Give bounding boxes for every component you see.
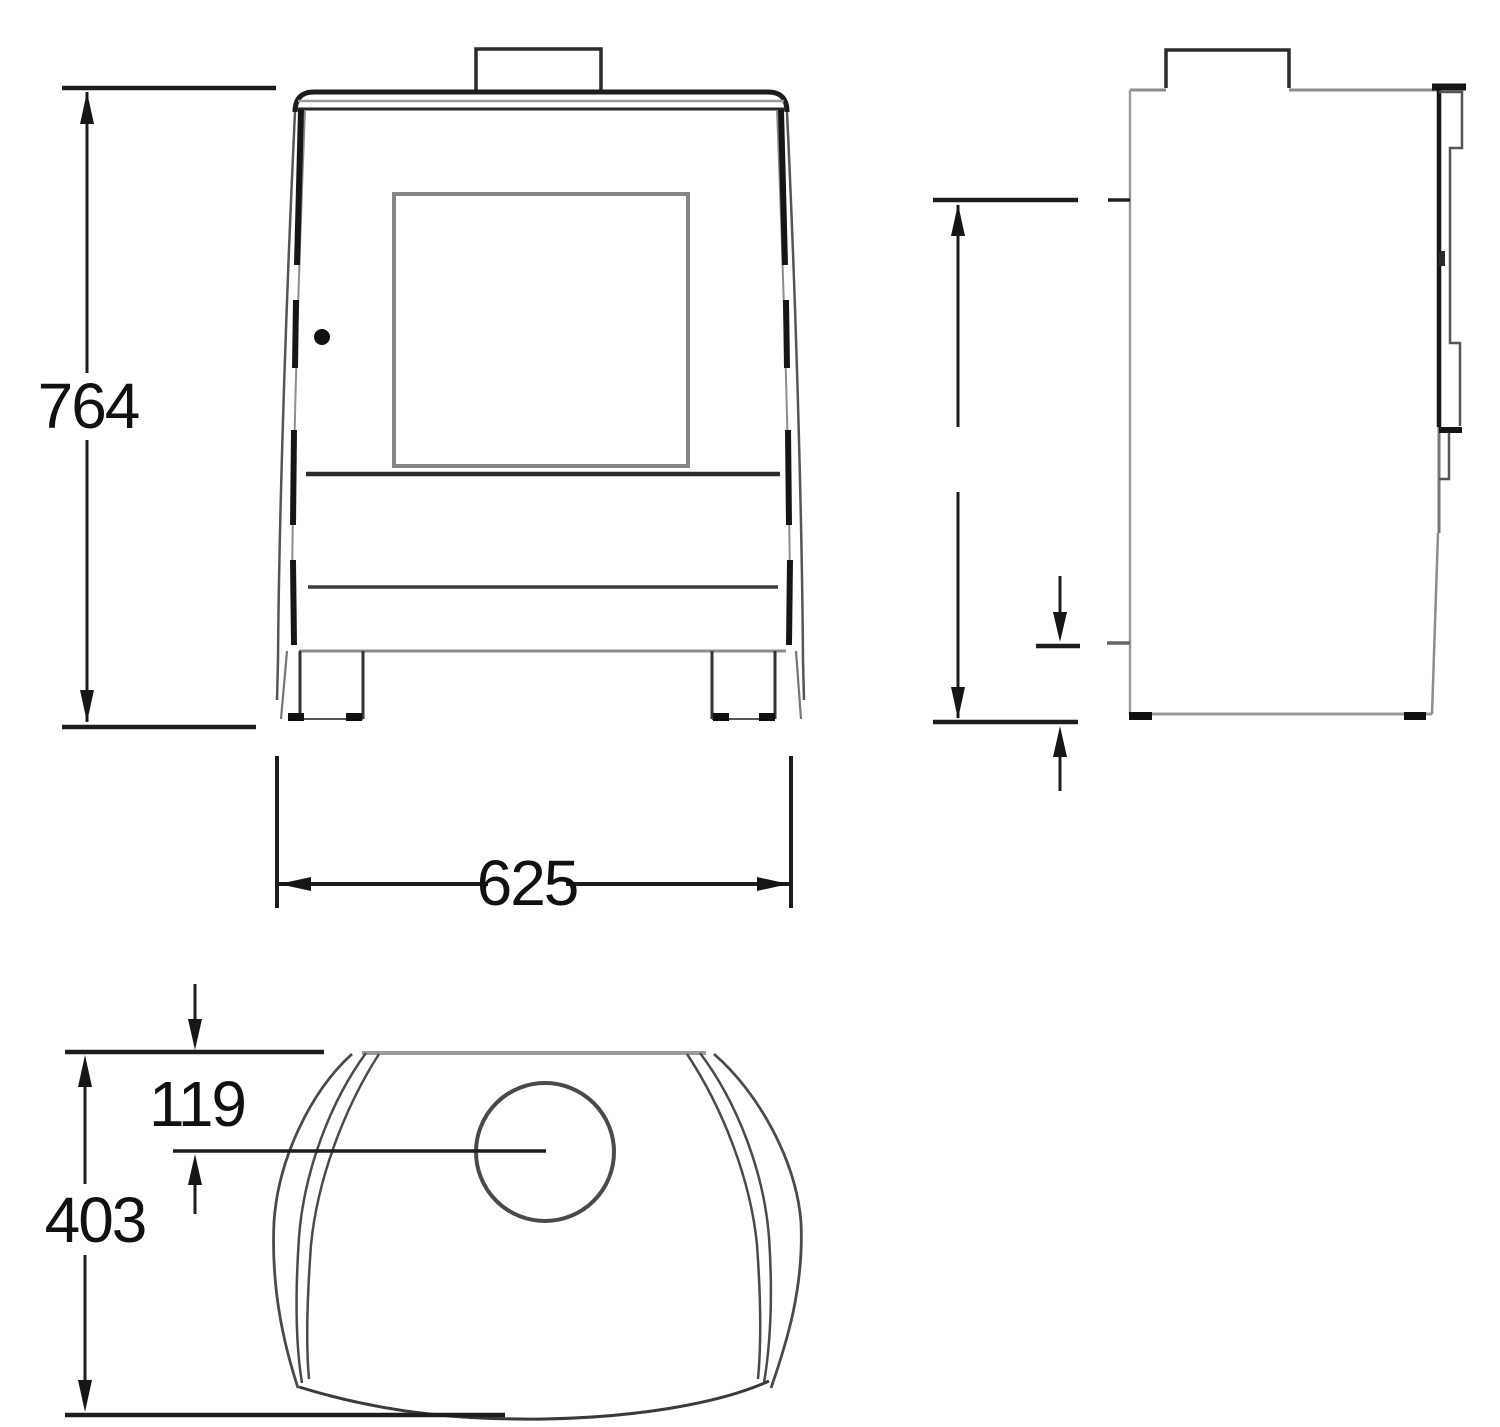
panel-curve-outer bbox=[714, 1054, 801, 1388]
front-left-edge-shade bbox=[297, 110, 301, 265]
dim-label-height: 764 bbox=[38, 370, 139, 442]
front-leg-right bbox=[712, 651, 801, 719]
side-hinge-pin bbox=[1439, 251, 1445, 266]
panel-curve-outer bbox=[274, 1054, 352, 1388]
top-left-side-panel bbox=[274, 1053, 379, 1388]
arrowhead-down bbox=[80, 690, 94, 722]
side-front-edge-lower bbox=[1432, 533, 1438, 714]
front-left-edge-shade bbox=[293, 430, 294, 525]
side-view bbox=[1107, 50, 1466, 716]
arrowhead-up bbox=[80, 92, 94, 124]
drawing-canvas: 764 625 bbox=[0, 0, 1500, 1427]
dim-side-base-unlabeled bbox=[1036, 576, 1080, 791]
leg-outer-slant bbox=[281, 651, 287, 719]
arrowhead-down bbox=[188, 1019, 202, 1050]
front-right-edge-shade bbox=[786, 300, 787, 368]
top-right-side-panel bbox=[687, 1053, 801, 1388]
front-view bbox=[277, 49, 804, 719]
dim-label-depth: 403 bbox=[45, 1184, 146, 1256]
arrowhead-right bbox=[757, 877, 789, 891]
front-right-edge-shade bbox=[789, 560, 790, 645]
panel-curve-inner bbox=[687, 1054, 760, 1379]
arrowhead-up bbox=[1053, 726, 1067, 757]
arrowhead-down bbox=[78, 1380, 92, 1412]
door-knob bbox=[314, 329, 330, 345]
arrowhead-up bbox=[78, 1055, 92, 1087]
dim-front-width: 625 bbox=[277, 756, 791, 919]
top-view bbox=[173, 1053, 801, 1419]
arrowhead-up bbox=[188, 1154, 202, 1185]
arrowhead-down bbox=[1053, 612, 1067, 642]
front-left-edge-shade bbox=[293, 560, 294, 645]
dim-side-height-unlabeled bbox=[933, 200, 1078, 722]
side-flue-collar bbox=[1166, 50, 1289, 88]
arrowhead-up bbox=[951, 204, 965, 236]
dim-label-width: 625 bbox=[477, 847, 578, 919]
leg-outer-slant bbox=[796, 651, 801, 719]
stove-dimension-drawing: 764 625 bbox=[0, 0, 1500, 1427]
front-right-edge-shade bbox=[781, 110, 785, 265]
front-left-edge-shade bbox=[295, 300, 296, 368]
front-right-edge-shade bbox=[788, 430, 789, 525]
dim-top-flue-offset: 119 bbox=[65, 984, 324, 1214]
dim-front-height: 764 bbox=[38, 88, 276, 727]
arrowhead-left bbox=[279, 877, 311, 891]
front-flue-collar bbox=[476, 49, 601, 91]
front-leg-left bbox=[281, 651, 363, 719]
arrowhead-down bbox=[951, 687, 965, 719]
door-window bbox=[394, 194, 688, 466]
panel-curve-inner bbox=[307, 1054, 379, 1379]
dim-label-flue-offset: 119 bbox=[149, 1068, 245, 1140]
